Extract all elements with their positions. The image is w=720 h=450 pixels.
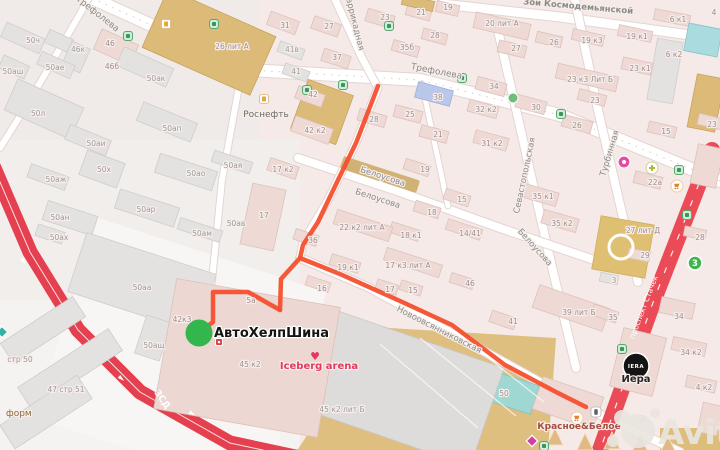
building-label: 50х bbox=[97, 165, 112, 174]
building-label: 46 bbox=[465, 279, 475, 288]
building-label: 23 к1 bbox=[629, 64, 650, 73]
building-label: 50ак bbox=[147, 74, 166, 83]
building-label: 46б bbox=[105, 62, 120, 71]
building-label: 50ая bbox=[224, 161, 243, 170]
building-label: 4 bbox=[712, 8, 717, 17]
transport-stop-icon[interactable] bbox=[339, 81, 348, 90]
building-label: 50ам bbox=[192, 229, 212, 238]
map[interactable]: 3IERA♥50ч46к4646б50аш50ае50ак50л50ап50аи… bbox=[0, 0, 720, 450]
building-label: 50л bbox=[31, 109, 46, 118]
building bbox=[690, 144, 720, 189]
building-label: 36 bbox=[308, 236, 318, 245]
building-label: 14/41 bbox=[459, 229, 481, 238]
building-label: 35 bbox=[608, 313, 618, 322]
roof-triangle bbox=[577, 433, 593, 450]
building-label: 22 к2 лит А bbox=[339, 223, 385, 232]
building-label: 50ап bbox=[162, 124, 181, 133]
destination-marker[interactable] bbox=[186, 320, 213, 347]
building-label: 30 bbox=[531, 103, 541, 112]
svg-text:Avito: Avito bbox=[658, 413, 720, 450]
building-label: 6 к1 bbox=[670, 15, 687, 24]
building-label: 42к3 bbox=[173, 315, 192, 324]
building-label: 19 к1 bbox=[337, 263, 358, 272]
fuel-station-icon[interactable] bbox=[162, 20, 171, 29]
building-label: 28 bbox=[369, 115, 379, 124]
building-label: 6 к2 bbox=[666, 50, 683, 59]
building-label: 39 лит Б bbox=[562, 308, 596, 317]
transport-stop-icon[interactable] bbox=[210, 20, 219, 29]
building-label: 21 bbox=[416, 8, 426, 17]
building-label: 18 bbox=[427, 208, 437, 217]
building-label: 34 bbox=[674, 312, 684, 321]
building-label: 41в bbox=[285, 45, 299, 54]
building-label: 15 bbox=[661, 127, 671, 136]
transport-stop-icon[interactable] bbox=[124, 32, 133, 41]
building-label: 32 к2 bbox=[475, 105, 496, 114]
building-label: 35б bbox=[400, 43, 415, 52]
transport-stop-icon[interactable] bbox=[618, 345, 627, 354]
building-label: 50ан bbox=[50, 213, 69, 222]
building-label: 23 bbox=[707, 120, 717, 129]
building-label: 19 к3 bbox=[581, 36, 602, 45]
building-label: 50ае bbox=[46, 63, 65, 72]
building-label: 50ав bbox=[227, 219, 246, 228]
building-label: 42 к2 bbox=[304, 126, 325, 135]
transport-stop-icon[interactable] bbox=[675, 166, 684, 175]
building-label: 27 лит Д bbox=[626, 226, 660, 235]
building-label: 37 bbox=[332, 53, 342, 62]
building-label: 23 bbox=[590, 96, 600, 105]
building-label: 41 bbox=[291, 67, 301, 76]
building-label: 19 bbox=[420, 165, 430, 174]
building-label: стр 50 bbox=[7, 355, 32, 364]
svg-text:IERA: IERA bbox=[628, 364, 645, 370]
building-label: 50аа bbox=[133, 283, 152, 292]
building-label: 31 bbox=[280, 21, 290, 30]
building-label: 50аш bbox=[2, 67, 23, 76]
poi-label: Иера bbox=[621, 374, 650, 385]
map-canvas[interactable]: 3IERA♥50ч46к4646б50аш50ае50ак50л50ап50аи… bbox=[0, 0, 720, 450]
building-label: 34 bbox=[489, 82, 499, 91]
building-label: 27 bbox=[511, 44, 521, 53]
building-label: 50ч bbox=[26, 36, 40, 45]
building-label: 50аж bbox=[46, 175, 67, 184]
building bbox=[684, 23, 720, 57]
building-label: 26 bbox=[572, 121, 582, 130]
building-label: 29 bbox=[640, 251, 650, 260]
pharmacy-icon[interactable] bbox=[646, 162, 658, 174]
tram-stop-icon[interactable] bbox=[591, 407, 601, 417]
building-label: 19 к1 bbox=[626, 32, 647, 41]
building-label: 3 bbox=[612, 276, 617, 285]
building-label: 22а bbox=[648, 178, 662, 187]
building-label: 17 к3 лит А bbox=[385, 261, 431, 270]
building-label: 23 к3 Лит Б bbox=[567, 75, 613, 84]
transport-stop-icon[interactable] bbox=[385, 22, 394, 31]
shop-icon[interactable] bbox=[671, 180, 683, 192]
building-label: 47 стр 51 bbox=[47, 385, 84, 394]
building bbox=[647, 38, 683, 104]
building-label: 16 bbox=[317, 284, 327, 293]
building-label: 50ар bbox=[137, 205, 156, 214]
poi-label: Iceberg arena bbox=[280, 361, 358, 372]
poi-label: Красное&Белое bbox=[537, 422, 620, 432]
building-label: 17 к2 bbox=[272, 165, 293, 174]
building-label: 21 bbox=[433, 130, 443, 139]
building-label: 35 к1 bbox=[532, 192, 553, 201]
building-label: 4 к2 bbox=[696, 383, 713, 392]
svg-text:3: 3 bbox=[692, 259, 698, 269]
fuel-station-icon[interactable] bbox=[260, 95, 269, 104]
building-label: 45 к2 bbox=[239, 360, 260, 369]
destination-label: АвтоХелпШина bbox=[214, 326, 329, 341]
building-label: 31 к2 bbox=[481, 139, 502, 148]
building-label: 38 bbox=[433, 93, 443, 102]
building-label: 5а bbox=[246, 296, 255, 305]
building-label: 15 bbox=[457, 195, 467, 204]
building-label: 18 к1 bbox=[400, 231, 421, 240]
building-label: 28 bbox=[430, 31, 440, 40]
building-label: 28 bbox=[695, 233, 705, 242]
transport-stop-icon[interactable] bbox=[540, 442, 549, 450]
building-label: 41 bbox=[508, 317, 518, 326]
building-label: 20 лит А bbox=[485, 19, 519, 28]
building-label: 15 bbox=[408, 286, 418, 295]
building-label: 35 к2 bbox=[551, 219, 572, 228]
building-label: 42 bbox=[308, 90, 318, 99]
building-label: 17 bbox=[385, 285, 395, 294]
tree-icon bbox=[508, 93, 518, 103]
building-label: 19 bbox=[443, 3, 453, 12]
transport-stop-icon[interactable] bbox=[557, 110, 566, 119]
building-label: 46 bbox=[105, 39, 115, 48]
building-label: 50 bbox=[499, 389, 509, 398]
building-label: 50ащ bbox=[143, 341, 164, 350]
building-label: 46к bbox=[71, 45, 86, 54]
building-label: 50ао bbox=[187, 169, 206, 178]
building-label: 50ах bbox=[50, 233, 69, 242]
building-label: 45 к2 лит Б bbox=[319, 405, 364, 414]
building-label: 26 лит А bbox=[215, 42, 249, 51]
route-badge-3[interactable]: 3 bbox=[688, 256, 702, 270]
building-label: 26 bbox=[549, 38, 559, 47]
building-label: 50аи bbox=[86, 139, 105, 148]
poi-label: форм bbox=[6, 409, 32, 419]
poi-label: Роснефть bbox=[243, 110, 289, 120]
transport-stop-icon[interactable] bbox=[683, 211, 692, 220]
building-label: 17 bbox=[259, 211, 269, 220]
building-label: 27 bbox=[324, 22, 334, 31]
avito-watermark: Avito bbox=[607, 408, 720, 450]
building-label: 34 к2 bbox=[680, 348, 701, 357]
building-label: 25 bbox=[405, 110, 415, 119]
beauty-salon-icon[interactable] bbox=[618, 156, 630, 168]
building-label: 23 bbox=[380, 13, 390, 22]
